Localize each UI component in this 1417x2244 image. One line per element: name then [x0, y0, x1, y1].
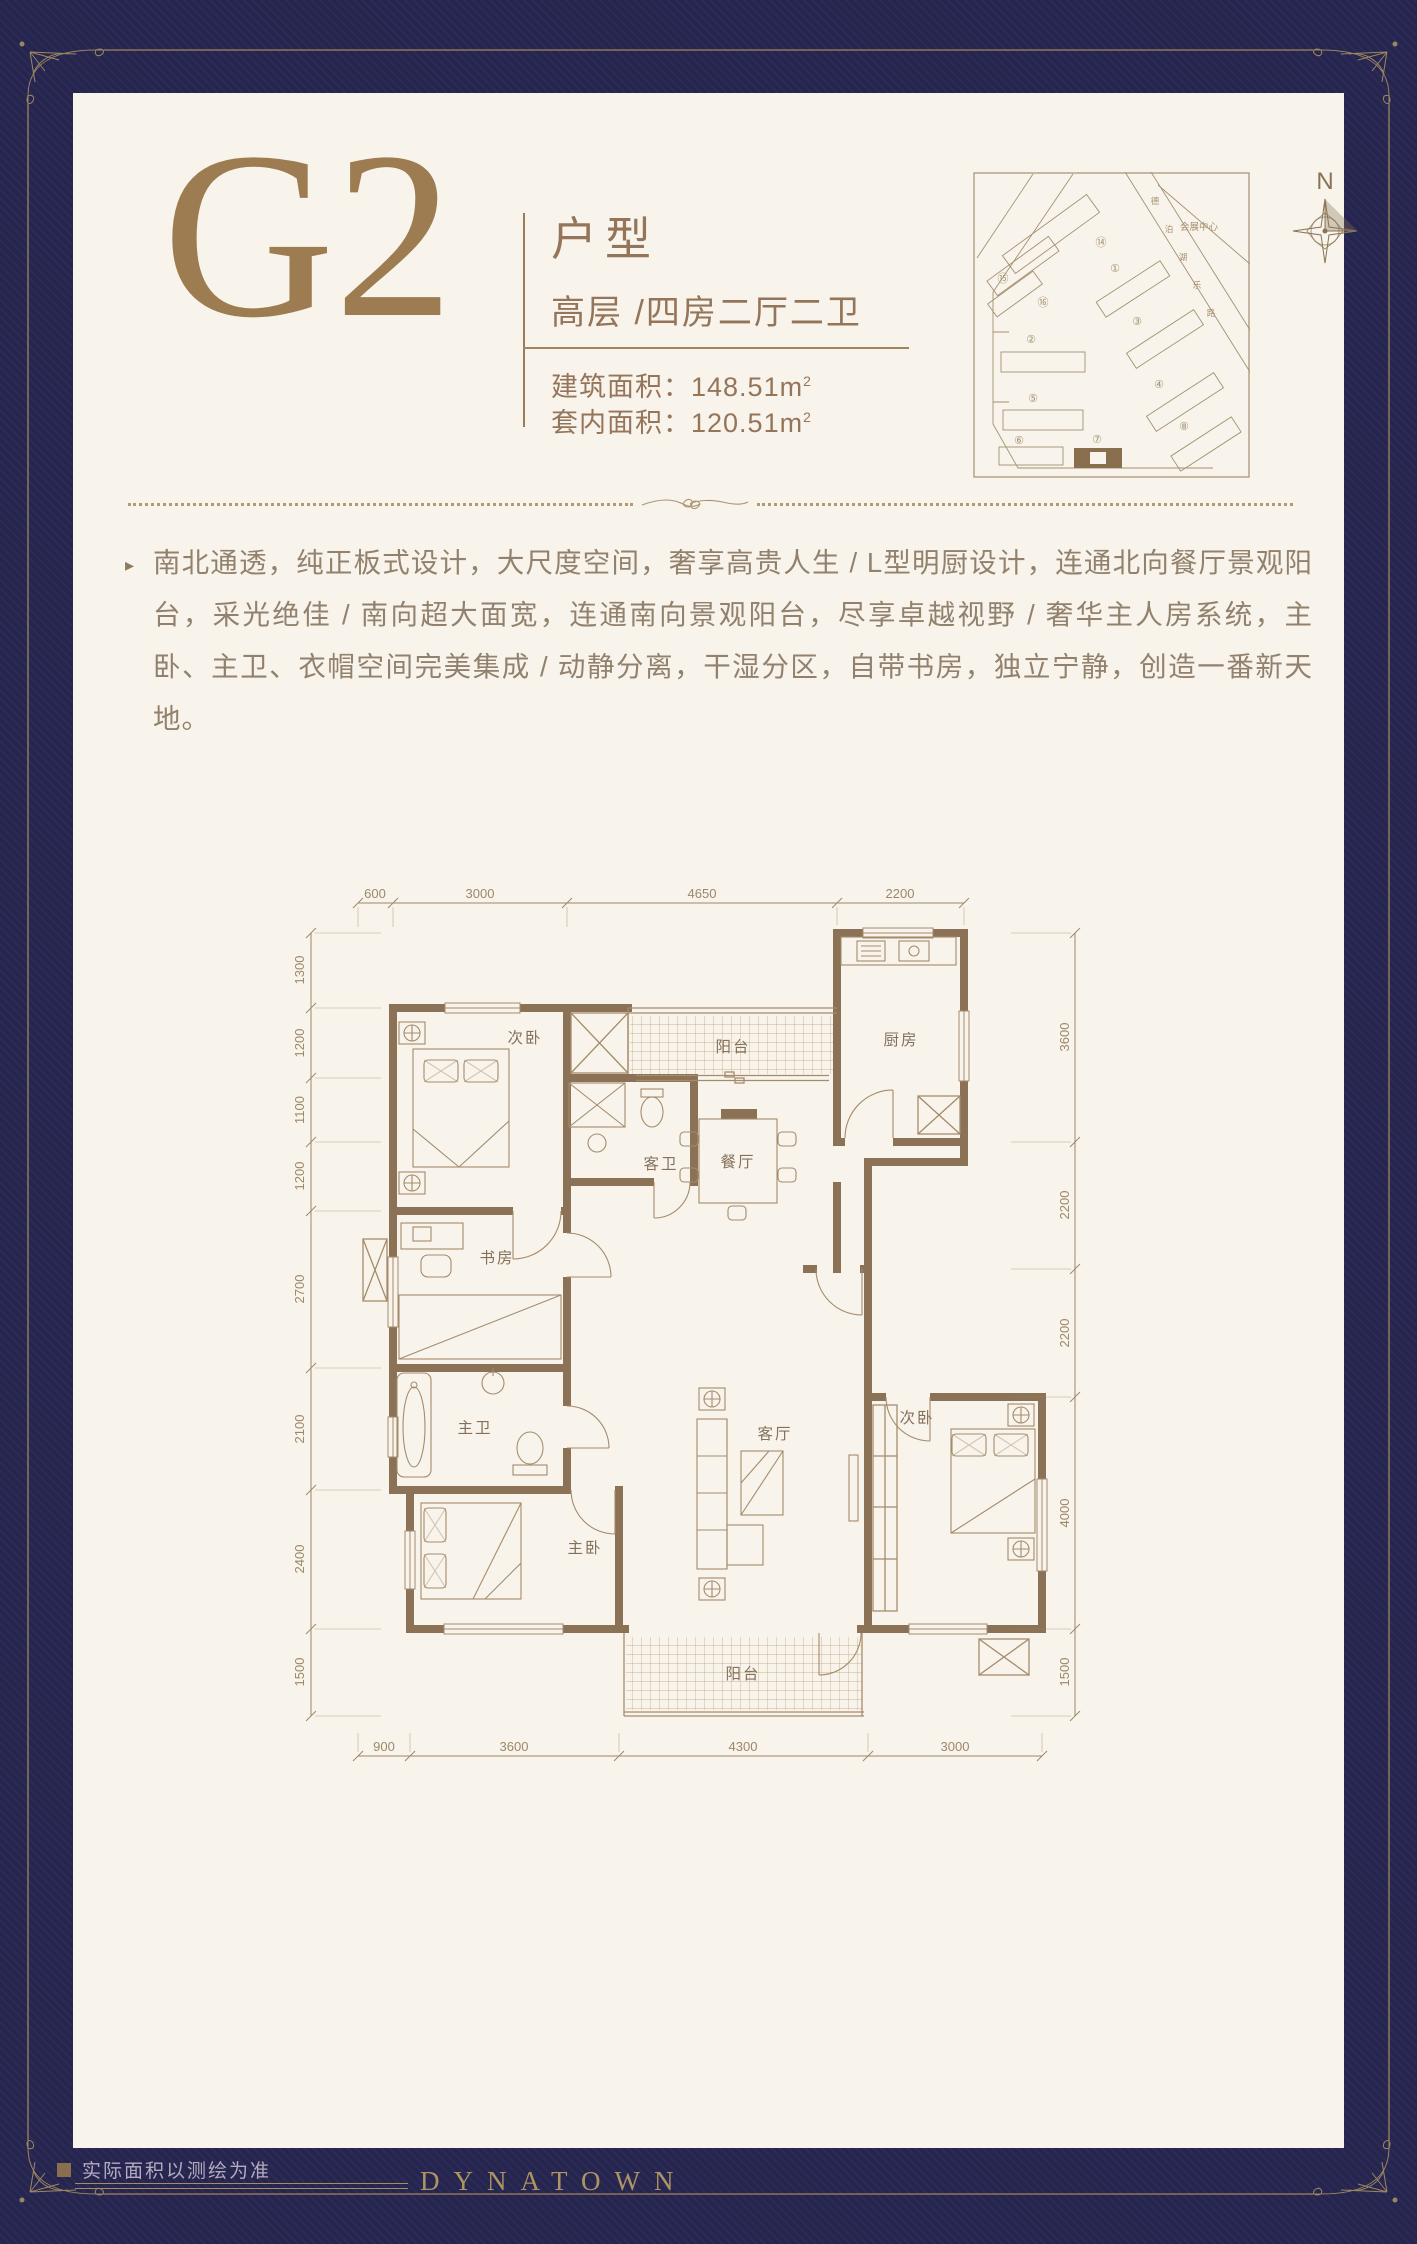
- dim-right: 3600: [1057, 1023, 1072, 1052]
- road-char: 乐: [1193, 280, 1202, 290]
- building-number: ③: [1132, 316, 1142, 328]
- divider-dots-right: [757, 503, 1293, 506]
- description-paragraph: ▸南北通透，纯正板式设计，大尺度空间，奢享高贵人生 / L型明厨设计，连通北向餐…: [125, 537, 1313, 745]
- dim-bottom: 3000: [941, 1739, 970, 1754]
- unit-code: G2: [123, 111, 493, 361]
- room-label-bedroom-r: 次卧: [899, 1409, 934, 1427]
- room-label-living: 客厅: [757, 1425, 792, 1443]
- content-panel: G2 户型 高层 /四房二厅二卫 建筑面积：148.51m2 套内面积：120.…: [73, 93, 1344, 2148]
- dim-left: 1500: [292, 1658, 307, 1687]
- north-label: N: [1316, 168, 1333, 195]
- building-area-sup: 2: [803, 373, 812, 389]
- inner-area-value: 120.51m: [691, 408, 803, 438]
- header-horizontal-divider: [523, 347, 909, 349]
- dim-bottom: 3600: [500, 1739, 529, 1754]
- floor-plan: 次卧 阳台 厨房 客卫 餐厅 书房 主卫 客厅 主卧 次卧 阳台: [263, 871, 1123, 1811]
- dim-top: 2200: [886, 886, 915, 901]
- building-area-label: 建筑面积：: [551, 372, 691, 402]
- room-label-master-bath: 主卫: [457, 1419, 492, 1437]
- dim-right: 1500: [1057, 1658, 1072, 1687]
- dim-left: 1300: [292, 956, 307, 985]
- compass-rose: [1293, 199, 1357, 263]
- dim-top: 600: [364, 886, 386, 901]
- room-label-bedroom-tl: 次卧: [507, 1029, 542, 1047]
- dim-bottom: 900: [373, 1739, 395, 1754]
- room-label-kitchen: 厨房: [883, 1031, 918, 1049]
- building-number: ⑭: [1096, 236, 1107, 249]
- bullet-arrow-icon: ▸: [125, 539, 135, 591]
- inner-area-sup: 2: [803, 409, 812, 425]
- inner-area-label: 套内面积：: [551, 408, 691, 438]
- road-char: 德: [1151, 196, 1160, 206]
- brochure-page: { "colors": { "navy": "#26254e", "navy_s…: [0, 0, 1417, 2244]
- room-label-balcony-top: 阳台: [715, 1038, 750, 1056]
- dim-right: 2200: [1057, 1191, 1072, 1220]
- scroll-ornament-icon: [639, 495, 751, 513]
- dim-left: 1100: [292, 1096, 307, 1124]
- room-label-master: 主卧: [567, 1539, 602, 1557]
- dim-left: 2700: [292, 1275, 307, 1304]
- section-divider: [128, 495, 1293, 513]
- building-number: ⑤: [1028, 393, 1038, 405]
- dim-right: 4000: [1057, 1499, 1072, 1528]
- description-text: 南北通透，纯正板式设计，大尺度空间，奢享高贵人生 / L型明厨设计，连通北向餐厅…: [153, 547, 1313, 734]
- dim-left: 1200: [292, 1162, 307, 1191]
- building-area: 建筑面积：148.51m2: [551, 365, 812, 404]
- site-highlight-building: [1074, 448, 1122, 468]
- road-char: 湖: [1179, 252, 1188, 262]
- site-plan-border: [974, 173, 1249, 477]
- dim-top: 3000: [466, 886, 495, 901]
- footer-note-text: 实际面积以测绘为准: [82, 2156, 271, 2183]
- building-number: ①: [1110, 263, 1120, 275]
- building-number: ⑥: [1014, 435, 1024, 447]
- site-roads: [977, 172, 1250, 468]
- dim-bottom: 4300: [729, 1739, 758, 1754]
- highlight-building-core: [1090, 452, 1106, 464]
- dim-top: 4650: [688, 886, 717, 901]
- dim-left: 2100: [292, 1415, 307, 1444]
- room-label-dining: 餐厅: [720, 1153, 755, 1171]
- dim-right: 2200: [1057, 1319, 1072, 1348]
- site-building-numbers: ⑭ ⑮ ⑯ ① ② ③ ④ ⑤ ⑥ ⑦ ⑧: [998, 236, 1190, 447]
- description-block: ▸南北通透，纯正板式设计，大尺度空间，奢享高贵人生 / L型明厨设计，连通北向餐…: [125, 537, 1313, 745]
- header-vertical-divider: [523, 213, 525, 427]
- compass-icon: N: [1283, 167, 1367, 271]
- corner-ornament-icon: [1313, 2140, 1398, 2203]
- road-char: 路: [1207, 308, 1216, 318]
- footer-rule: [75, 2183, 408, 2189]
- landmark-label: 会展中心: [1180, 221, 1219, 233]
- brand-logotype: DYNATOWN: [420, 2166, 688, 2197]
- building-number: ⑧: [1179, 421, 1189, 433]
- header-category: 户型: [551, 203, 659, 269]
- building-area-value: 148.51m: [691, 372, 803, 402]
- divider-dots-left: [128, 503, 633, 506]
- room-label-study: 书房: [479, 1249, 514, 1267]
- building-number: ④: [1154, 379, 1164, 391]
- building-number: ⑦: [1092, 434, 1102, 446]
- site-buildings: [987, 195, 1241, 472]
- dim-left: 2400: [292, 1545, 307, 1574]
- inner-area: 套内面积：120.51m2: [551, 401, 812, 440]
- dim-left: 1200: [292, 1029, 307, 1058]
- site-plan-map: ⑭ ⑮ ⑯ ① ② ③ ④ ⑤ ⑥ ⑦ ⑧ 会展中心 德 泊 湖 乐 路: [973, 172, 1250, 478]
- room-label-balcony-bottom: 阳台: [725, 1665, 760, 1683]
- site-labels: 会展中心 德 泊 湖 乐 路: [1151, 196, 1219, 318]
- room-label-guest-bath: 客卫: [643, 1155, 678, 1173]
- footer-note: 实际面积以测绘为准: [57, 2156, 271, 2183]
- building-number: ⑮: [998, 272, 1009, 285]
- floor-plan-wrap: 次卧 阳台 厨房 客卫 餐厅 书房 主卫 客厅 主卧 次卧 阳台: [263, 871, 1123, 1816]
- header-type-line: 高层 /四房二厅二卫: [551, 285, 862, 334]
- road-char: 泊: [1165, 224, 1174, 234]
- building-number: ⑯: [1038, 296, 1049, 309]
- footer-square-icon: [57, 2163, 71, 2177]
- building-number: ②: [1026, 334, 1036, 346]
